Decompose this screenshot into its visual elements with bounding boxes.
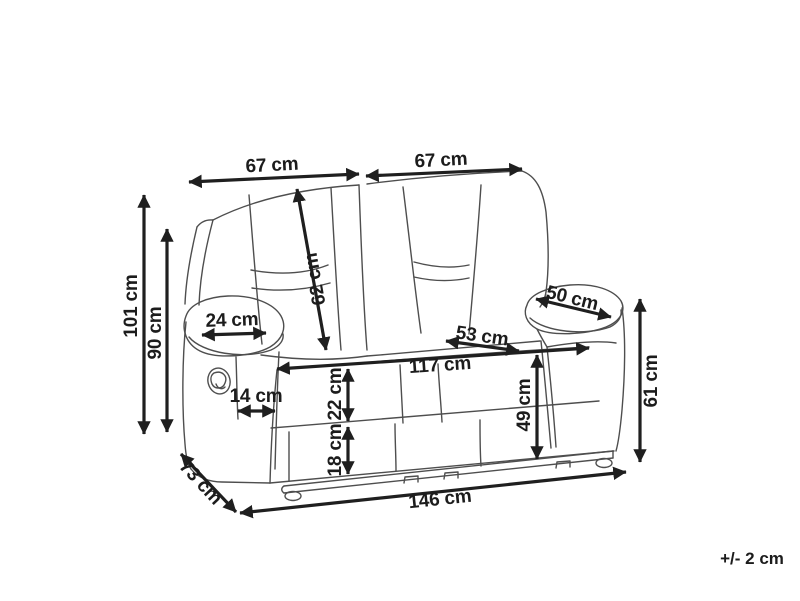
- left-armrest-pad-lip: [189, 334, 283, 355]
- arrow-armrest-top-width: [202, 333, 266, 335]
- back-left-inner-edge: [199, 220, 213, 305]
- left-armrest-outer-edge: [183, 322, 191, 469]
- dim-label-front-upper-band: 22 cm: [325, 368, 347, 421]
- foot-right: [596, 459, 612, 468]
- dim-label-backrest-height: 90 cm: [145, 307, 167, 360]
- back-left-top-edge: [213, 185, 359, 220]
- right-armrest-pad-lip: [530, 310, 621, 332]
- foot-left: [285, 492, 301, 501]
- back-left-top-corner: [197, 220, 213, 227]
- front-arm-boundary-seam: [541, 341, 551, 448]
- back-left-side-edge: [185, 227, 197, 304]
- back-right-seam-1: [403, 187, 421, 333]
- front-seam-lower-3: [480, 420, 481, 466]
- tolerance-note: +/- 2 cm: [720, 549, 784, 569]
- dim-label-armrest-front-width: 14 cm: [230, 386, 283, 408]
- dim-label-front-lower-band: 18 cm: [325, 424, 347, 477]
- right-armrest-front-top: [547, 342, 616, 347]
- dim-label-overall-height: 101 cm: [121, 274, 143, 337]
- dim-label-back-width-right: 67 cm: [414, 149, 468, 174]
- sofa-line-art: [183, 171, 625, 501]
- diagram-canvas: [0, 0, 800, 601]
- right-armrest-inner-edge: [547, 347, 556, 447]
- dim-label-armrest-height: 61 cm: [641, 355, 663, 408]
- right-armrest-outer-edge: [616, 308, 625, 451]
- back-left-seam-2: [331, 188, 341, 350]
- dim-label-armrest-top-width: 24 cm: [205, 309, 259, 333]
- sofa-dimension-diagram: 67 cm 67 cm 62 cm 101 cm 90 cm 24 cm 50 …: [0, 0, 800, 601]
- back-right-seam-2: [469, 185, 481, 334]
- dim-label-seat-front-height: 49 cm: [514, 379, 536, 432]
- back-center-split: [359, 185, 367, 350]
- front-face-mid-seam: [271, 401, 599, 428]
- back-right-lumbar-seam-2: [414, 277, 469, 281]
- seat-crease-left: [261, 355, 367, 359]
- front-seam-upper-1: [400, 365, 403, 423]
- back-right-lumbar-seam-1: [414, 262, 469, 267]
- front-seam-lower-2: [395, 424, 396, 471]
- dim-label-inner-width: 117 cm: [408, 353, 472, 379]
- base-rail-left-cap: [282, 486, 284, 493]
- back-right-outer-edge: [522, 171, 548, 292]
- dim-label-back-width-left: 67 cm: [245, 154, 299, 179]
